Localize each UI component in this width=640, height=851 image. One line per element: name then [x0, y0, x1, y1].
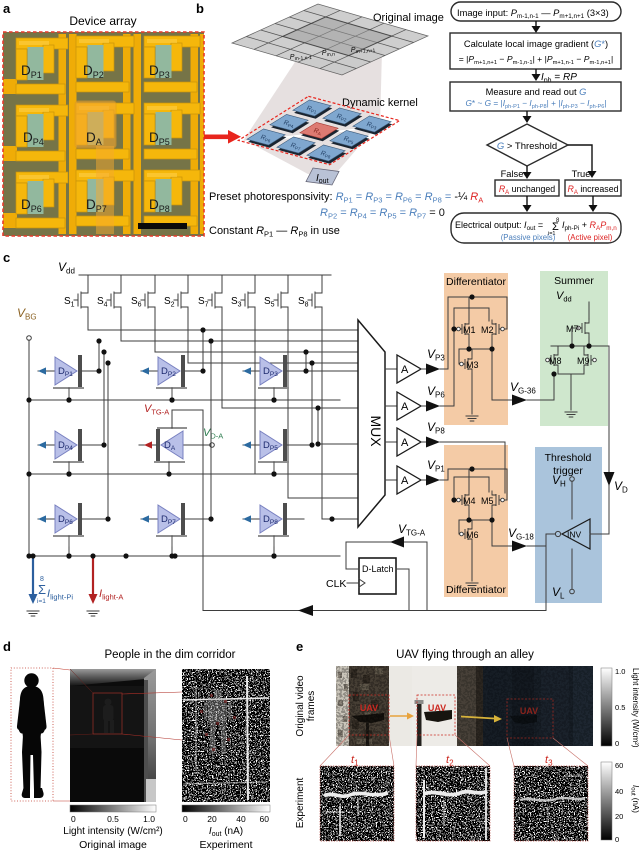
svg-text:M3: M3	[466, 360, 479, 370]
svg-text:1.0: 1.0	[143, 814, 155, 824]
svg-text:MUX: MUX	[368, 415, 384, 447]
svg-text:S1: S1	[64, 296, 75, 309]
svg-text:VP1: VP1	[427, 458, 445, 474]
svg-text:0.5: 0.5	[107, 814, 119, 824]
svg-text:Measure and read out G: Measure and read out G	[486, 87, 587, 97]
svg-text:G > Threshold: G > Threshold	[497, 141, 557, 152]
svg-text:False: False	[501, 169, 524, 179]
svg-text:VP6: VP6	[427, 384, 445, 400]
svg-text:Original video: Original video	[295, 675, 306, 737]
svg-text:Device array: Device array	[69, 14, 136, 28]
svg-text:d: d	[3, 639, 11, 654]
svg-text:Constant RP1 — RP8 in use: Constant RP1 — RP8 in use	[209, 225, 340, 239]
svg-text:Iout (nA): Iout (nA)	[630, 785, 640, 813]
svg-text:VD: VD	[614, 479, 628, 495]
svg-text:Σ: Σ	[38, 582, 46, 597]
svg-text:Threshold: Threshold	[545, 452, 592, 464]
svg-text:UAV: UAV	[360, 703, 378, 713]
svg-text:A: A	[401, 475, 409, 487]
svg-text:e: e	[296, 639, 303, 654]
svg-text:People in the dim corridor: People in the dim corridor	[104, 649, 235, 661]
svg-text:S6: S6	[131, 296, 142, 309]
svg-text:S7: S7	[198, 296, 209, 309]
svg-text:frames: frames	[306, 691, 317, 722]
svg-text:60: 60	[260, 814, 270, 824]
svg-text:t1: t1	[351, 754, 359, 768]
svg-text:40: 40	[615, 787, 623, 796]
svg-text:i=1: i=1	[37, 598, 46, 605]
svg-text:0: 0	[71, 814, 76, 824]
svg-text:Light intensity (W/cm²): Light intensity (W/cm²)	[631, 668, 640, 748]
svg-text:0: 0	[183, 814, 188, 824]
svg-text:Iout (nA): Iout (nA)	[209, 826, 243, 838]
svg-text:c: c	[3, 250, 10, 265]
svg-text:Dynamic kernel: Dynamic kernel	[342, 97, 418, 109]
svg-text:D-Latch: D-Latch	[362, 564, 394, 574]
svg-text:INV: INV	[567, 530, 582, 540]
svg-text:Experiment: Experiment	[295, 777, 306, 828]
svg-text:VG-18: VG-18	[508, 526, 534, 542]
svg-text:1.0: 1.0	[615, 667, 625, 676]
svg-text:VG-36: VG-36	[510, 380, 536, 396]
svg-text:Ilight-A: Ilight-A	[99, 588, 123, 602]
svg-text:RP2 = RP4 = RP5 = RP7 = 0: RP2 = RP4 = RP5 = RP7 = 0	[320, 207, 445, 221]
svg-text:(Active pixel): (Active pixel)	[568, 233, 613, 242]
svg-text:Ilight-Pi: Ilight-Pi	[47, 588, 73, 602]
svg-text:VTG-A: VTG-A	[398, 522, 426, 538]
svg-text:(Passive pixels): (Passive pixels)	[501, 233, 556, 242]
svg-text:Vdd: Vdd	[58, 260, 75, 276]
svg-text:A: A	[401, 364, 409, 376]
svg-text:a: a	[3, 1, 11, 16]
svg-text:M6: M6	[466, 530, 479, 540]
svg-text:CLK: CLK	[326, 578, 346, 590]
svg-text:M5: M5	[481, 496, 494, 506]
svg-text:b: b	[196, 1, 204, 16]
svg-text:20: 20	[207, 814, 217, 824]
svg-text:M1: M1	[463, 325, 476, 335]
svg-text:S4: S4	[97, 296, 108, 309]
svg-text:t3: t3	[545, 754, 553, 768]
svg-text:Experiment: Experiment	[199, 839, 252, 851]
svg-text:Preset photoresponsivity: RP1: Preset photoresponsivity: RP1 = RP3 = RP…	[209, 191, 483, 205]
svg-text:t2: t2	[446, 754, 454, 768]
svg-text:S3: S3	[231, 296, 242, 309]
svg-text:VTG-A: VTG-A	[144, 403, 169, 417]
svg-text:Calculate local image gradient: Calculate local image gradient (G*)	[464, 39, 608, 49]
svg-text:M9: M9	[577, 356, 590, 366]
svg-text:M2: M2	[481, 325, 494, 335]
svg-text:20: 20	[615, 812, 623, 821]
svg-text:UAV: UAV	[428, 703, 446, 713]
svg-text:Original image: Original image	[79, 839, 147, 851]
svg-text:M4: M4	[463, 496, 476, 506]
svg-text:60: 60	[615, 761, 623, 770]
svg-text:S2: S2	[164, 296, 175, 309]
svg-text:Original image: Original image	[373, 12, 444, 24]
svg-text:VD-A: VD-A	[203, 427, 223, 441]
svg-text:40: 40	[236, 814, 246, 824]
svg-text:UAV flying through an alley: UAV flying through an alley	[396, 649, 534, 661]
svg-text:VP3: VP3	[427, 347, 445, 363]
svg-text:True: True	[572, 169, 591, 179]
svg-text:Light intensity (W/cm²): Light intensity (W/cm²)	[63, 826, 162, 837]
svg-text:0: 0	[615, 739, 619, 748]
svg-text:A: A	[401, 437, 409, 449]
svg-text:Differentiator: Differentiator	[446, 276, 506, 288]
svg-text:0: 0	[615, 835, 619, 844]
svg-text:A: A	[401, 401, 409, 413]
svg-text:VP8: VP8	[427, 420, 445, 436]
svg-text:0.5: 0.5	[615, 703, 625, 712]
svg-text:UAV: UAV	[520, 706, 538, 716]
svg-text:S5: S5	[264, 296, 275, 309]
svg-text:S8: S8	[298, 296, 309, 309]
svg-text:M8: M8	[549, 356, 562, 366]
svg-text:Summer: Summer	[554, 275, 594, 287]
svg-text:VBG: VBG	[17, 306, 37, 322]
